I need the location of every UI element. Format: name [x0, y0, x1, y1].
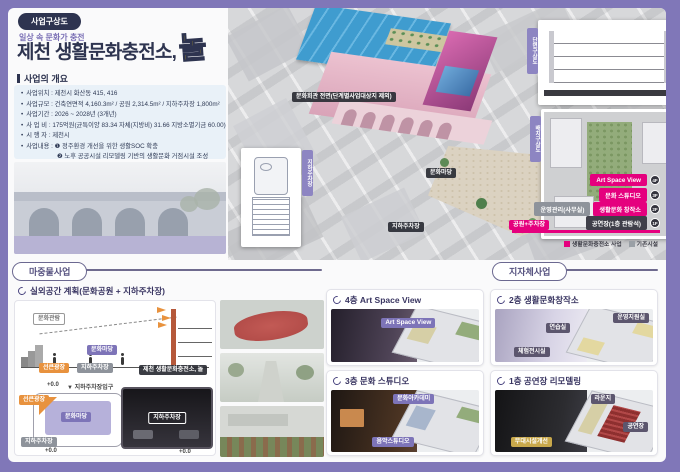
tree	[228, 363, 244, 377]
card-1f-hall-remodeling: 1층 공연장 리모델링 라운지 공연장 무대시설개선	[490, 370, 658, 456]
floor-callout-3f: 문화 스튜디오 3F	[599, 188, 660, 202]
plaza-pavement	[14, 236, 226, 254]
arch-building-render	[14, 162, 226, 254]
tree	[440, 158, 449, 167]
car	[133, 430, 153, 439]
media-screen	[436, 66, 479, 97]
board-inner: 사업구상도 일상 속 문화가 충전 제천 생활문화충전소, 놀 사업의 개요 사…	[8, 8, 666, 462]
park-path-render	[220, 353, 324, 402]
red-court	[232, 307, 309, 345]
rotate-arrow-icon	[331, 375, 342, 386]
plaza-label: 문화마당	[426, 168, 456, 178]
inset-tab-floorplan: 지하주차장	[302, 150, 313, 196]
screen	[340, 409, 364, 428]
city-block	[228, 8, 311, 82]
seed-section-title: 마중물사업	[12, 262, 87, 281]
floor-name: 생활문화 창작소	[593, 202, 647, 216]
tree	[180, 196, 198, 212]
axon-zone	[456, 407, 479, 425]
overview-heading: 사업의 개요	[17, 72, 68, 85]
parking-stalls	[252, 197, 290, 236]
overview-item: 사업규모 : 건축연면적 4,160.3m² / 공원 2,314.5m² / …	[21, 100, 219, 111]
space-tag: Art Space View	[381, 318, 435, 328]
aerial-legend: 생활문화충전소 사업 기존시설	[564, 239, 658, 248]
plan-outline	[254, 157, 288, 195]
floor-level-badge: 3F	[650, 190, 660, 200]
rotate-arrow-icon	[331, 294, 342, 305]
walkway	[258, 361, 284, 402]
space-tag: 문화아카데미	[393, 394, 434, 404]
aerial-axonometric-map: 지하주차장 단면구상도 배치구상도 문화회관 전면(단계별사업대상지 제외) 문…	[228, 8, 666, 260]
inset-tab-siteplan: 배치구상도	[530, 116, 541, 162]
card-title: 4층 Art Space View	[327, 290, 483, 309]
card-image: Art Space View	[331, 309, 479, 362]
arch-opening	[417, 119, 435, 137]
floor-callout-4f: Art Space View 4F	[590, 174, 660, 186]
room-tag: 라운지	[591, 394, 616, 404]
parking-plan-inset	[241, 148, 301, 247]
level-mark: +0.0	[179, 449, 191, 455]
legend-swatch-existing	[629, 241, 635, 247]
tree	[194, 188, 220, 210]
axon-zone	[632, 322, 653, 339]
card-title: 1층 공연장 리모델링	[491, 371, 657, 390]
rotate-arrow-icon	[16, 285, 27, 296]
rotate-arrow-icon	[495, 375, 506, 386]
car	[179, 430, 199, 439]
outdoor-diagram-panel: 문화관람 문화마당 선큰광장 지하주차장 제천 생활문화충전소, 놀 +0.0 …	[14, 300, 216, 456]
room-tag: 무대시설개선	[511, 437, 552, 447]
overview-item: 시 행 자 : 제천시	[21, 131, 219, 142]
card-image: 라운지 공연장 무대시설개선	[495, 390, 653, 452]
view-label: 문화관람	[33, 313, 65, 325]
room-tag: 연습실	[546, 323, 571, 333]
space-tag: 음악스튜디오	[372, 437, 413, 447]
park-parking-label: 공원+주차장	[509, 220, 549, 230]
card-title: 2층 생활문화창작소	[491, 290, 657, 309]
level-mark: +0.0	[45, 448, 57, 454]
card-2f-creation-space: 2층 생활문화창작소 운영지원실 연습실 체험전시실	[490, 289, 658, 366]
legend-item: 생활문화충전소 사업	[564, 239, 622, 248]
floor-name: 문화 스튜디오	[599, 188, 647, 202]
parking-label: 지하주차장	[388, 222, 424, 232]
floor-callout-1f: 공연장(1층 관람석) 1F	[586, 216, 660, 230]
plaza-label: 문화마당	[61, 412, 91, 422]
parking-entry-label: ▼ 지하주차장입구	[67, 382, 113, 391]
project-title: 제천 생활문화충전소,	[17, 37, 176, 64]
seed-subtitle: 실외공간 계획(문화공원 + 지하주차장)	[18, 285, 165, 297]
room-tag: 운영지원실	[613, 313, 649, 323]
arch-opening	[436, 122, 454, 140]
overview-item: 사업기간 : 2026 ~ 2028년 (3개년)	[21, 110, 219, 121]
section-drawing-inset	[538, 20, 666, 105]
gov-section-title: 지자체사업	[492, 262, 567, 281]
speaker-icon	[157, 307, 166, 313]
speaker-icon	[158, 322, 167, 328]
building-mass	[228, 414, 288, 426]
plan-outline	[260, 163, 272, 171]
rotate-arrow-icon	[495, 294, 506, 305]
arch-opening	[360, 111, 378, 129]
overview-list: 사업위치 : 제천시 화산동 415, 416 사업규모 : 건축연면적 4,1…	[14, 85, 226, 159]
arch-opening	[29, 208, 59, 236]
gov-section-header: 지자체사업	[492, 262, 658, 278]
arch-opening	[398, 117, 416, 135]
axon-zone	[406, 406, 436, 431]
phase-divider-bar	[512, 230, 660, 233]
floor-lines	[178, 315, 212, 358]
building-label: 문화회관 전면(단계별사업대상지 제외)	[292, 92, 396, 102]
legend-swatch-project	[564, 241, 570, 247]
overview-item: 사 업 비 : 175억원(균특이양 83.34 자체(지방비) 31.66 지…	[21, 121, 219, 132]
tree	[296, 365, 314, 380]
sunken-plaza-label: 선큰광장	[19, 395, 49, 405]
floor-level-badge: 2F	[650, 204, 660, 214]
section-basement	[544, 90, 666, 96]
site-plan-building	[642, 122, 666, 164]
heading-bar-icon	[17, 74, 20, 83]
project-title-accent: 놀	[178, 34, 208, 64]
arch-opening	[115, 208, 145, 236]
card-title: 3층 문화 스튜디오	[327, 371, 483, 390]
floor-level-badge: 4F	[650, 175, 660, 185]
sunken-plaza-label: 선큰광장	[39, 363, 69, 373]
axon-zone	[577, 337, 605, 355]
parking-label: 지하주차장	[21, 437, 57, 447]
room-tag: 체험전시실	[514, 347, 550, 357]
floor-name: Art Space View	[590, 174, 647, 186]
arch-opening	[72, 208, 102, 236]
underground-parking-photo: 지하주차장	[121, 387, 213, 449]
rooftop-garden-render	[220, 406, 324, 457]
seed-section-header: 마중물사업	[12, 262, 322, 278]
legend-item: 기존시설	[629, 239, 658, 248]
photo-label: 지하주차장	[148, 412, 186, 424]
level-mark: +0.0	[47, 382, 59, 388]
floor-callout-2f: 운영관리(사무실) 생활문화 창작소 2F	[534, 202, 660, 216]
card-3f-culture-studio: 3층 문화 스튜디오 문화아카데미 음악스튜디오	[326, 370, 484, 456]
card-image: 문화아카데미 음악스튜디오	[331, 390, 479, 452]
floor-aside: 운영관리(사무실)	[534, 202, 590, 216]
arch-opening	[158, 208, 188, 236]
speaker-icon	[162, 315, 171, 321]
board-type-badge: 사업구상도	[18, 13, 81, 30]
facility-caption: 제천 생활문화충전소, 놀	[139, 365, 207, 375]
building-slab	[171, 309, 176, 367]
inset-tab-section: 단면구상도	[527, 28, 538, 74]
arch-opening	[379, 114, 397, 132]
floor-name: 공연장(1층 관람석)	[586, 216, 647, 230]
arch-opening	[341, 109, 359, 127]
plaza-label: 문화마당	[87, 345, 117, 355]
overview-item: 사업내용 : ❶ 정주환경 개선을 위한 생활SOC 확충	[21, 142, 219, 153]
section-sketch: 문화관람 문화마당 선큰광장 지하주차장 제천 생활문화충전소, 놀	[19, 305, 211, 377]
card-image: 운영지원실 연습실 체험전시실	[495, 309, 653, 362]
axon-zone	[455, 322, 479, 342]
floor-level-badge: 1F	[650, 218, 660, 228]
tree	[476, 198, 487, 209]
render-strip	[220, 300, 324, 461]
plan-sketch: +0.0 ▼ 지하주차장입구 선큰광장 문화마당 지하주차장 +0.0 지하주차…	[19, 381, 211, 451]
concept-board: 사업구상도 일상 속 문화가 충전 제천 생활문화충전소, 놀 사업의 개요 사…	[0, 0, 680, 472]
playground-render	[220, 300, 324, 349]
parking-label: 지하주차장	[77, 363, 113, 373]
room-tag: 공연장	[623, 422, 648, 432]
section-floors	[549, 31, 666, 83]
site-plan-building	[550, 118, 582, 168]
project-title-row: 제천 생활문화충전소, 놀	[17, 35, 207, 64]
overview-item: 사업위치 : 제천시 화산동 415, 416	[21, 89, 219, 100]
person-figure	[121, 357, 124, 365]
planting-rows	[220, 437, 324, 457]
card-4f-art-space-view: 4층 Art Space View Art Space View	[326, 289, 484, 366]
